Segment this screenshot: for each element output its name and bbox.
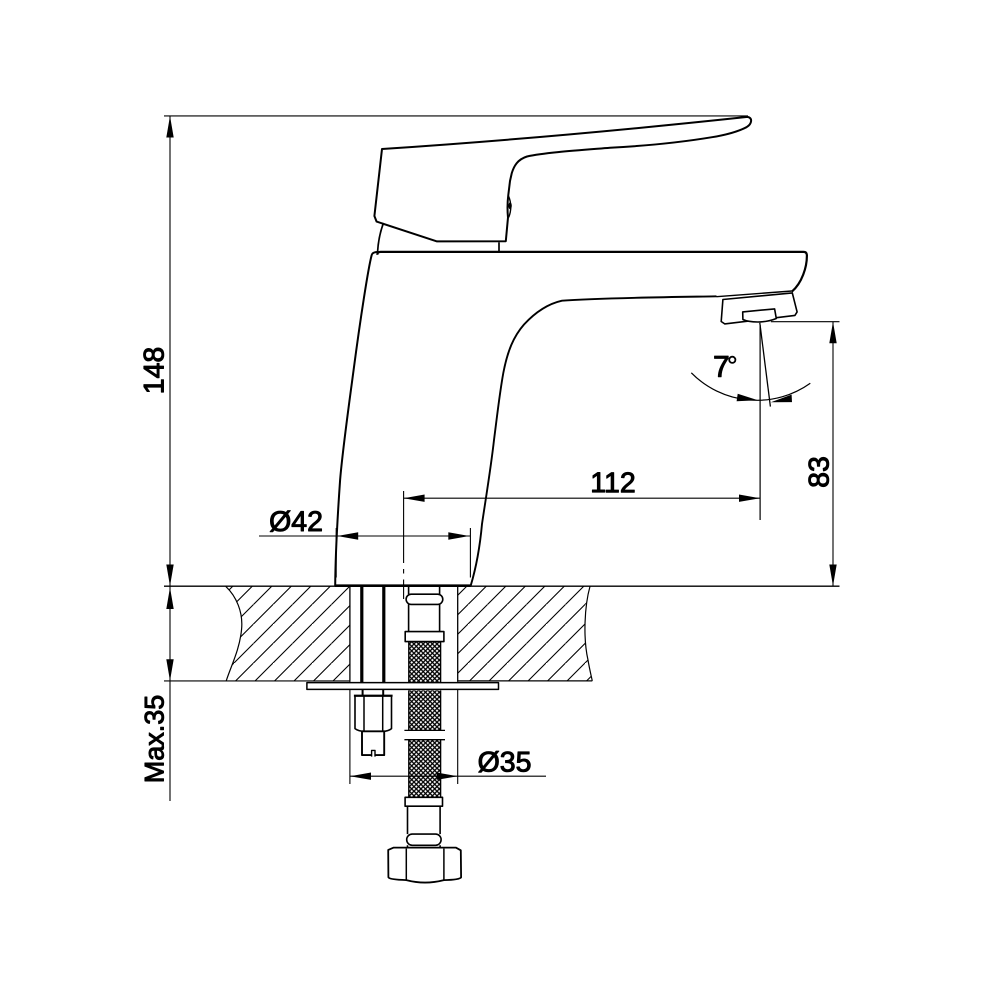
svg-text:Ø42: Ø42	[269, 506, 323, 538]
svg-text:112: 112	[590, 467, 635, 499]
svg-text:83: 83	[804, 456, 836, 488]
svg-text:Ø35: Ø35	[478, 746, 532, 778]
svg-text:148: 148	[139, 347, 171, 395]
svg-text:Max.35: Max.35	[140, 695, 170, 784]
svg-text:7: 7	[713, 351, 730, 384]
